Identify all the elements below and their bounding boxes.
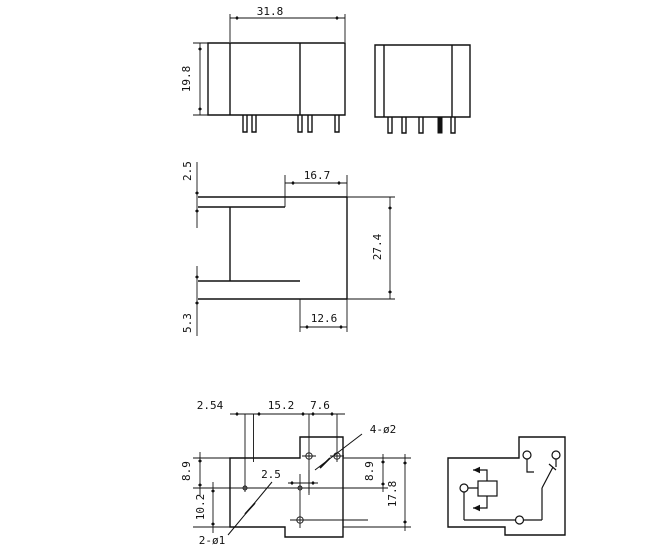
coil-lead-arrows (473, 467, 480, 511)
dim-right-total: 17.8 (386, 481, 399, 508)
dim-pin-span: 15.2 (268, 399, 295, 412)
contact-terminal-a (523, 451, 531, 459)
front-view-inner-lines (230, 43, 300, 115)
dim-front-height: 19.8 (180, 66, 193, 93)
side-view-inner-lines (384, 45, 452, 117)
front-view-pins (243, 115, 339, 132)
dim-top-flange: 2.5 (181, 161, 194, 181)
dim-front-width: 31.8 (257, 5, 284, 18)
drawing-svg: 31.8 19.8 2.5 5.3 16.7 27.4 12. (0, 0, 669, 550)
leader-mount-holes (315, 434, 362, 470)
side-view (375, 45, 470, 133)
wiring-schematic (448, 437, 565, 535)
contact-terminal-b (552, 451, 560, 459)
pcb-layout: 2.54 15.2 7.6 8.9 10.2 8.9 17.8 2.5 4-ø2… (180, 399, 411, 547)
dim-height-lines (193, 43, 208, 115)
dim-left-lower: 10.2 (194, 494, 207, 521)
dim-depth: 27.4 (371, 233, 384, 260)
dim-hole-span: 7.6 (310, 399, 330, 412)
coil-symbol (478, 481, 497, 496)
dim-bottom-flange: 5.3 (181, 313, 194, 333)
side-view-solid-pin (438, 117, 442, 133)
dim-offset: 2.5 (261, 468, 281, 481)
relay-dimension-drawing: 31.8 19.8 2.5 5.3 16.7 27.4 12. (0, 0, 669, 550)
dim-bottom-width: 12.6 (311, 312, 338, 325)
dim-left-upper: 8.9 (180, 461, 193, 481)
coil-terminal (460, 484, 468, 492)
dim-pin-pitch: 2.54 (197, 399, 224, 412)
common-terminal (516, 516, 524, 524)
side-view-pins (388, 117, 455, 133)
front-view: 31.8 19.8 (180, 5, 345, 132)
coil-leads (473, 470, 487, 508)
note-mounting-holes: 4-ø2 (370, 423, 397, 436)
front-view-body (208, 43, 345, 115)
dim-width-lines (230, 14, 345, 42)
side-view-body (375, 45, 470, 117)
dim-right-upper: 8.9 (363, 461, 376, 481)
note-pin-holes: 2-ø1 (199, 534, 226, 547)
dim-top-width: 16.7 (304, 169, 331, 182)
profile-outline (198, 197, 347, 299)
profile-view: 2.5 5.3 16.7 27.4 12.6 (181, 161, 395, 336)
